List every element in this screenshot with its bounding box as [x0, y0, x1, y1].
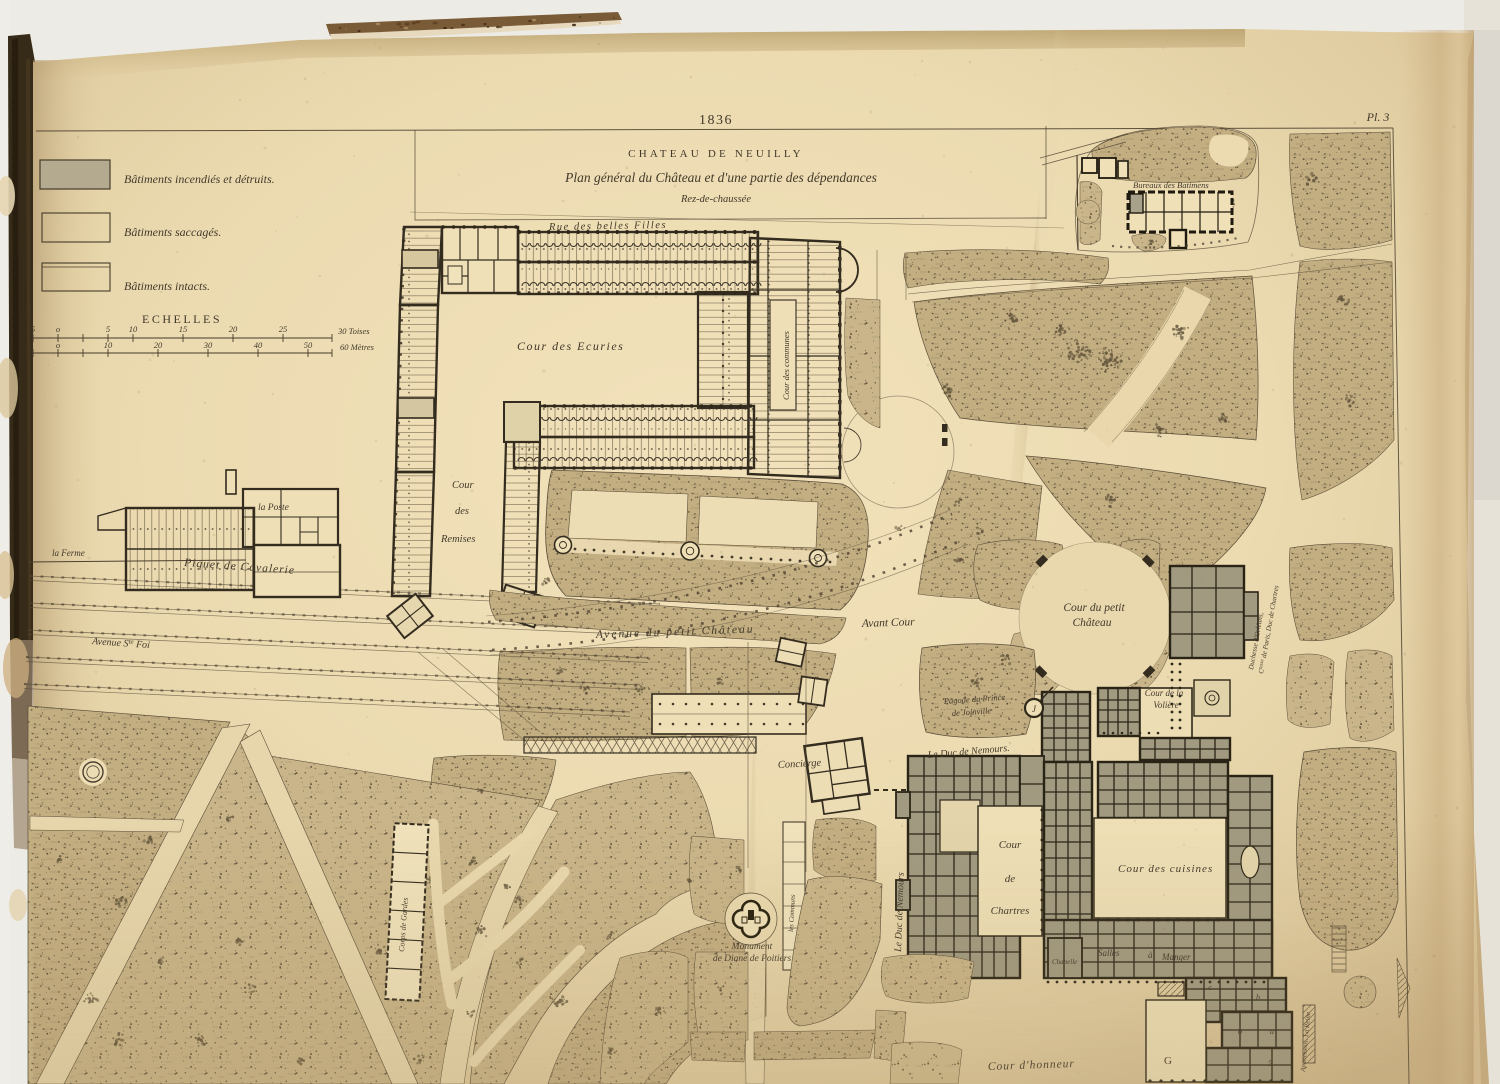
- svg-text:20: 20: [154, 340, 163, 350]
- svg-text:Volière: Volière: [1153, 700, 1178, 710]
- svg-text:Remises: Remises: [440, 534, 475, 545]
- svg-text:1836: 1836: [699, 113, 733, 128]
- svg-text:Rez-de-chaussée: Rez-de-chaussée: [680, 194, 751, 205]
- svg-text:Rue des belles Filles: Rue des belles Filles: [548, 220, 667, 233]
- svg-text:Plan général du Château et d'u: Plan général du Château et d'une partie …: [564, 170, 877, 185]
- svg-text:60 Mètres: 60 Mètres: [340, 342, 375, 352]
- svg-text:25: 25: [279, 324, 288, 334]
- svg-text:30: 30: [203, 340, 213, 350]
- svg-text:des: des: [455, 506, 469, 517]
- svg-text:20: 20: [229, 324, 238, 334]
- svg-text:la Ferme: la Ferme: [52, 548, 85, 558]
- svg-text:Bâtiments incendiés et détruit: Bâtiments incendiés et détruits.: [124, 172, 275, 186]
- svg-text:Pl. 3: Pl. 3: [1366, 110, 1390, 124]
- svg-text:5: 5: [31, 324, 35, 334]
- svg-text:Château: Château: [1073, 617, 1112, 629]
- svg-text:CHATEAU DE NEUILLY: CHATEAU DE NEUILLY: [628, 148, 804, 160]
- svg-text:15: 15: [179, 324, 188, 334]
- svg-text:10: 10: [104, 340, 113, 350]
- svg-text:Avant Cour: Avant Cour: [861, 616, 916, 630]
- svg-text:Cour: Cour: [452, 480, 475, 491]
- svg-text:Bureaux des Batimens: Bureaux des Batimens: [1133, 180, 1209, 190]
- svg-text:40: 40: [254, 340, 263, 350]
- svg-text:Concierge: Concierge: [778, 758, 822, 771]
- svg-text:o: o: [56, 324, 60, 334]
- svg-text:Cour des communes: Cour des communes: [781, 330, 791, 400]
- svg-text:Bâtiments saccagés.: Bâtiments saccagés.: [124, 225, 221, 239]
- svg-text:Bâtiments intacts.: Bâtiments intacts.: [124, 279, 210, 293]
- svg-text:30 Toises: 30 Toises: [337, 326, 370, 336]
- svg-text:Cour du petit: Cour du petit: [1063, 602, 1125, 614]
- svg-text:50: 50: [304, 340, 313, 350]
- svg-text:Cour de la: Cour de la: [1145, 688, 1184, 698]
- svg-text:Cour des Ecuries: Cour des Ecuries: [517, 339, 624, 353]
- svg-text:o: o: [56, 340, 60, 350]
- svg-text:la Poste: la Poste: [258, 503, 289, 513]
- svg-text:10: 10: [129, 324, 138, 334]
- svg-text:5: 5: [106, 324, 110, 334]
